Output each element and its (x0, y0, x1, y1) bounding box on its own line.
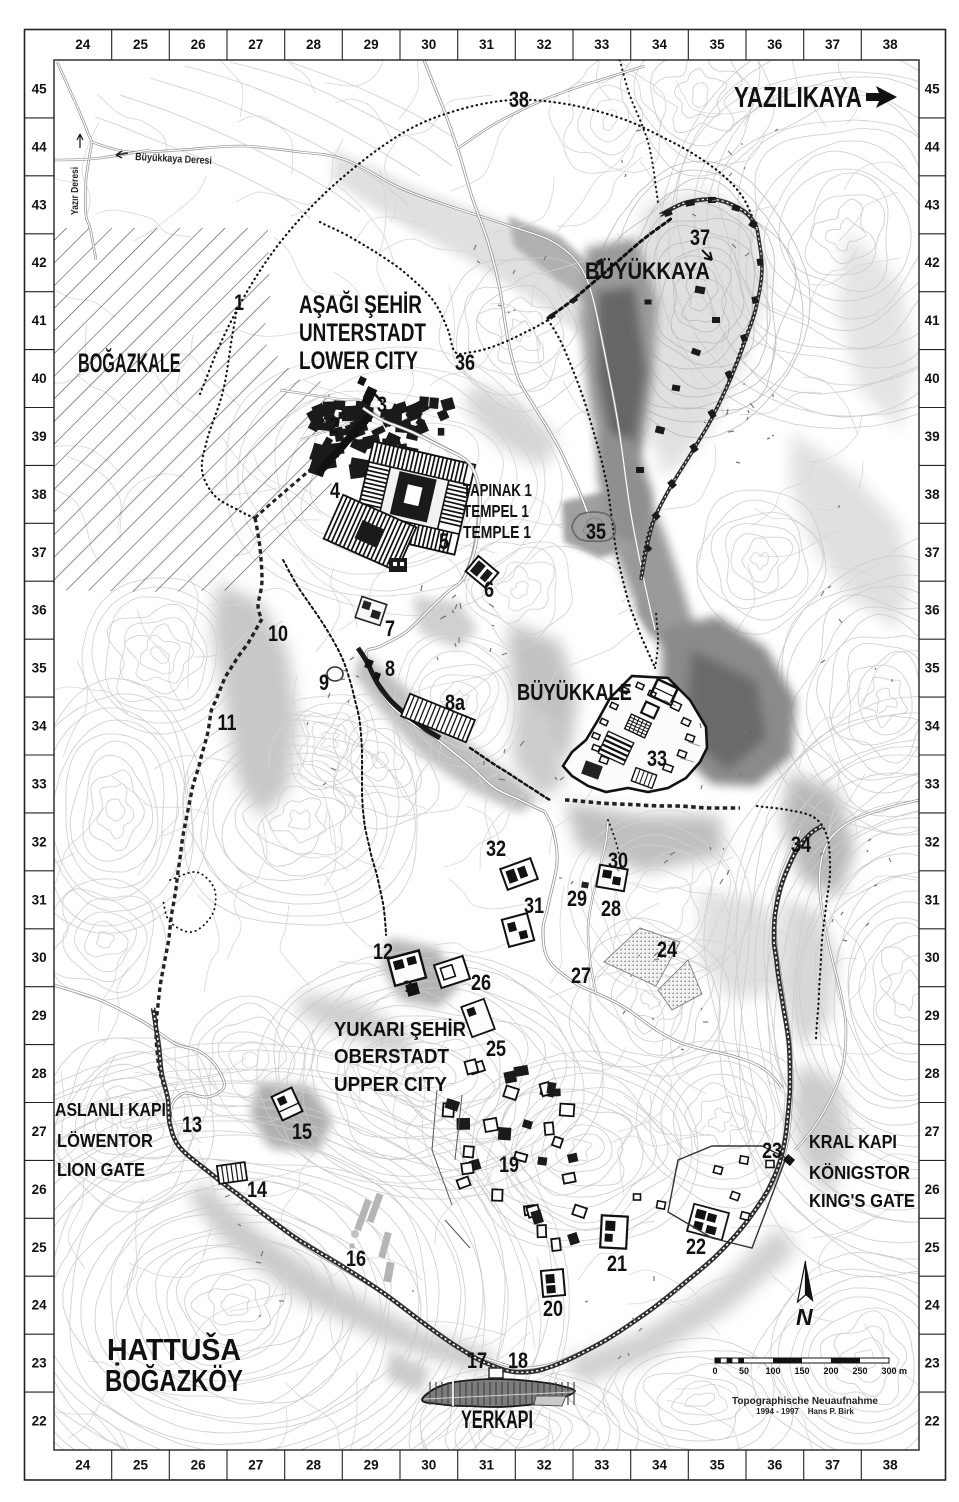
svg-text:23: 23 (762, 1139, 782, 1163)
svg-text:5: 5 (439, 530, 449, 554)
svg-text:25: 25 (133, 37, 149, 52)
svg-text:35: 35 (925, 661, 941, 676)
svg-text:44: 44 (32, 139, 48, 154)
svg-text:KÖNIGSTOR: KÖNIGSTOR (809, 1162, 910, 1183)
svg-text:26: 26 (925, 1182, 941, 1197)
svg-text:43: 43 (32, 197, 48, 212)
svg-text:39: 39 (925, 429, 940, 444)
svg-text:25: 25 (925, 1240, 941, 1255)
svg-text:LOWER CITY: LOWER CITY (299, 346, 418, 374)
svg-text:40: 40 (925, 371, 940, 386)
svg-text:TEMPEL 1: TEMPEL 1 (463, 502, 529, 521)
svg-text:29: 29 (364, 37, 379, 52)
svg-text:42: 42 (32, 255, 47, 270)
svg-text:8a: 8a (445, 691, 466, 715)
svg-text:BOĞAZKALE: BOĞAZKALE (78, 348, 181, 378)
svg-text:37: 37 (925, 545, 940, 560)
svg-text:32: 32 (537, 1458, 552, 1473)
svg-text:17: 17 (467, 1349, 487, 1373)
svg-text:22: 22 (32, 1414, 47, 1429)
svg-text:15: 15 (292, 1120, 312, 1144)
svg-text:AŞAĞI ŞEHİR: AŞAĞI ŞEHİR (299, 290, 422, 318)
svg-text:23: 23 (925, 1356, 941, 1371)
svg-text:8: 8 (385, 657, 395, 681)
svg-text:33: 33 (594, 37, 610, 52)
svg-text:30: 30 (32, 950, 47, 965)
svg-text:ASLANLI KAPI: ASLANLI KAPI (55, 1099, 166, 1120)
svg-text:34: 34 (791, 833, 812, 857)
svg-text:31: 31 (479, 1458, 495, 1473)
svg-text:32: 32 (486, 837, 506, 861)
svg-text:35: 35 (710, 37, 726, 52)
svg-text:30: 30 (421, 37, 436, 52)
svg-text:18: 18 (508, 1349, 528, 1373)
svg-text:16: 16 (346, 1247, 366, 1271)
svg-text:N: N (796, 1304, 813, 1330)
svg-text:26: 26 (471, 971, 491, 995)
svg-text:13: 13 (182, 1113, 202, 1137)
svg-text:300: 300 (881, 1366, 896, 1376)
svg-text:33: 33 (594, 1458, 610, 1473)
svg-text:33: 33 (32, 777, 48, 792)
svg-text:35: 35 (32, 661, 48, 676)
svg-text:33: 33 (647, 747, 667, 771)
svg-text:22: 22 (925, 1414, 940, 1429)
svg-text:31: 31 (524, 894, 544, 918)
svg-text:34: 34 (32, 719, 48, 734)
svg-text:0: 0 (712, 1366, 717, 1376)
svg-text:36: 36 (455, 351, 475, 375)
svg-text:YUKARI ŞEHİR: YUKARI ŞEHİR (334, 1019, 466, 1041)
svg-text:TEMPLE 1: TEMPLE 1 (463, 524, 531, 543)
svg-text:43: 43 (925, 197, 941, 212)
svg-text:KING'S GATE: KING'S GATE (809, 1190, 915, 1211)
svg-text:36: 36 (32, 603, 48, 618)
svg-text:10: 10 (268, 622, 288, 646)
svg-text:BÜYÜKKALE: BÜYÜKKALE (517, 680, 632, 705)
svg-text:24: 24 (75, 1458, 91, 1473)
svg-text:TAPINAK 1: TAPINAK 1 (463, 481, 532, 500)
svg-text:YERKAPI: YERKAPI (461, 1407, 533, 1434)
svg-text:36: 36 (925, 603, 941, 618)
svg-text:21: 21 (607, 1252, 627, 1276)
svg-text:38: 38 (883, 37, 899, 52)
svg-text:34: 34 (925, 719, 941, 734)
svg-text:YAZILIKAYA: YAZILIKAYA (734, 82, 862, 113)
svg-text:32: 32 (32, 834, 47, 849)
svg-text:1: 1 (234, 291, 244, 315)
svg-text:4: 4 (330, 479, 341, 503)
svg-text:27: 27 (925, 1124, 940, 1139)
svg-text:25: 25 (486, 1037, 506, 1061)
svg-text:36: 36 (767, 1458, 783, 1473)
svg-text:38: 38 (32, 487, 48, 502)
svg-text:24: 24 (657, 938, 678, 962)
svg-text:250: 250 (852, 1366, 867, 1376)
svg-text:7: 7 (385, 617, 395, 641)
svg-text:LION GATE: LION GATE (57, 1159, 145, 1180)
svg-text:?: ? (402, 977, 412, 996)
svg-text:12: 12 (373, 940, 393, 964)
svg-text:44: 44 (925, 139, 941, 154)
svg-text:38: 38 (883, 1458, 899, 1473)
svg-text:100: 100 (765, 1366, 780, 1376)
svg-text:150: 150 (794, 1366, 809, 1376)
svg-text:25: 25 (32, 1240, 48, 1255)
svg-text:29: 29 (364, 1458, 379, 1473)
svg-text:29: 29 (567, 887, 587, 911)
svg-text:29: 29 (32, 1008, 47, 1023)
svg-text:24: 24 (925, 1298, 941, 1313)
svg-text:33: 33 (925, 777, 941, 792)
svg-text:24: 24 (75, 37, 91, 52)
svg-text:26: 26 (191, 37, 207, 52)
svg-text:41: 41 (925, 313, 941, 328)
svg-text:27: 27 (32, 1124, 47, 1139)
svg-text:38: 38 (925, 487, 941, 502)
svg-text:22: 22 (686, 1235, 706, 1259)
svg-text:30: 30 (925, 950, 940, 965)
svg-text:35: 35 (710, 1458, 726, 1473)
svg-text:27: 27 (248, 37, 263, 52)
svg-text:UNTERSTADT: UNTERSTADT (299, 318, 426, 346)
svg-text:32: 32 (925, 834, 940, 849)
svg-text:37: 37 (825, 1458, 840, 1473)
svg-text:28: 28 (925, 1066, 941, 1081)
svg-text:30: 30 (608, 849, 628, 873)
svg-text:28: 28 (306, 1458, 322, 1473)
svg-text:27: 27 (248, 1458, 263, 1473)
svg-text:40: 40 (32, 371, 47, 386)
svg-text:24: 24 (32, 1298, 48, 1313)
svg-text:11: 11 (217, 711, 236, 735)
svg-text:m: m (899, 1366, 907, 1376)
svg-text:UPPER CITY: UPPER CITY (334, 1073, 447, 1096)
svg-text:34: 34 (652, 37, 668, 52)
svg-text:50: 50 (739, 1366, 749, 1376)
svg-text:1994 - 1997 Hans P. Birk: 1994 - 1997 Hans P. Birk (756, 1407, 854, 1416)
svg-text:LÖWENTOR: LÖWENTOR (57, 1130, 153, 1151)
svg-text:28: 28 (601, 897, 621, 921)
svg-text:20: 20 (543, 1297, 563, 1321)
svg-text:Yazır Deresi: Yazır Deresi (69, 167, 80, 215)
svg-text:26: 26 (32, 1182, 48, 1197)
svg-text:31: 31 (32, 892, 48, 907)
svg-text:25: 25 (133, 1458, 149, 1473)
svg-text:38: 38 (509, 88, 529, 112)
svg-text:19: 19 (499, 1153, 519, 1177)
svg-text:41: 41 (32, 313, 48, 328)
svg-text:45: 45 (925, 82, 941, 97)
svg-text:14: 14 (247, 1178, 268, 1202)
svg-text:37: 37 (825, 37, 840, 52)
svg-text:37: 37 (32, 545, 47, 560)
svg-text:Topographische Neuaufnahme: Topographische Neuaufnahme (732, 1396, 878, 1407)
svg-text:28: 28 (306, 37, 322, 52)
svg-text:9: 9 (319, 671, 329, 695)
svg-text:200: 200 (823, 1366, 838, 1376)
svg-text:OBERSTADT: OBERSTADT (334, 1045, 449, 1068)
svg-text:45: 45 (32, 82, 48, 97)
svg-text:BOĞAZKÖY: BOĞAZKÖY (105, 1363, 243, 1398)
svg-text:31: 31 (479, 37, 495, 52)
svg-text:26: 26 (191, 1458, 207, 1473)
svg-text:36: 36 (767, 37, 783, 52)
svg-text:30: 30 (421, 1458, 436, 1473)
svg-text:28: 28 (32, 1066, 48, 1081)
svg-text:32: 32 (537, 37, 552, 52)
svg-text:6: 6 (484, 578, 494, 602)
svg-text:27: 27 (571, 964, 591, 988)
svg-text:39: 39 (32, 429, 47, 444)
svg-text:ḤATTUŠA: ḤATTUŠA (107, 1332, 241, 1367)
svg-text:37: 37 (690, 226, 710, 250)
svg-text:BÜYÜKKAYA: BÜYÜKKAYA (585, 257, 710, 284)
svg-text:42: 42 (925, 255, 940, 270)
svg-text:KRAL KAPI: KRAL KAPI (809, 1131, 897, 1152)
svg-text:35: 35 (586, 520, 606, 544)
svg-text:29: 29 (925, 1008, 940, 1023)
svg-text:31: 31 (925, 892, 941, 907)
svg-text:2: 2 (329, 414, 339, 438)
svg-text:23: 23 (32, 1356, 48, 1371)
svg-text:34: 34 (652, 1458, 668, 1473)
